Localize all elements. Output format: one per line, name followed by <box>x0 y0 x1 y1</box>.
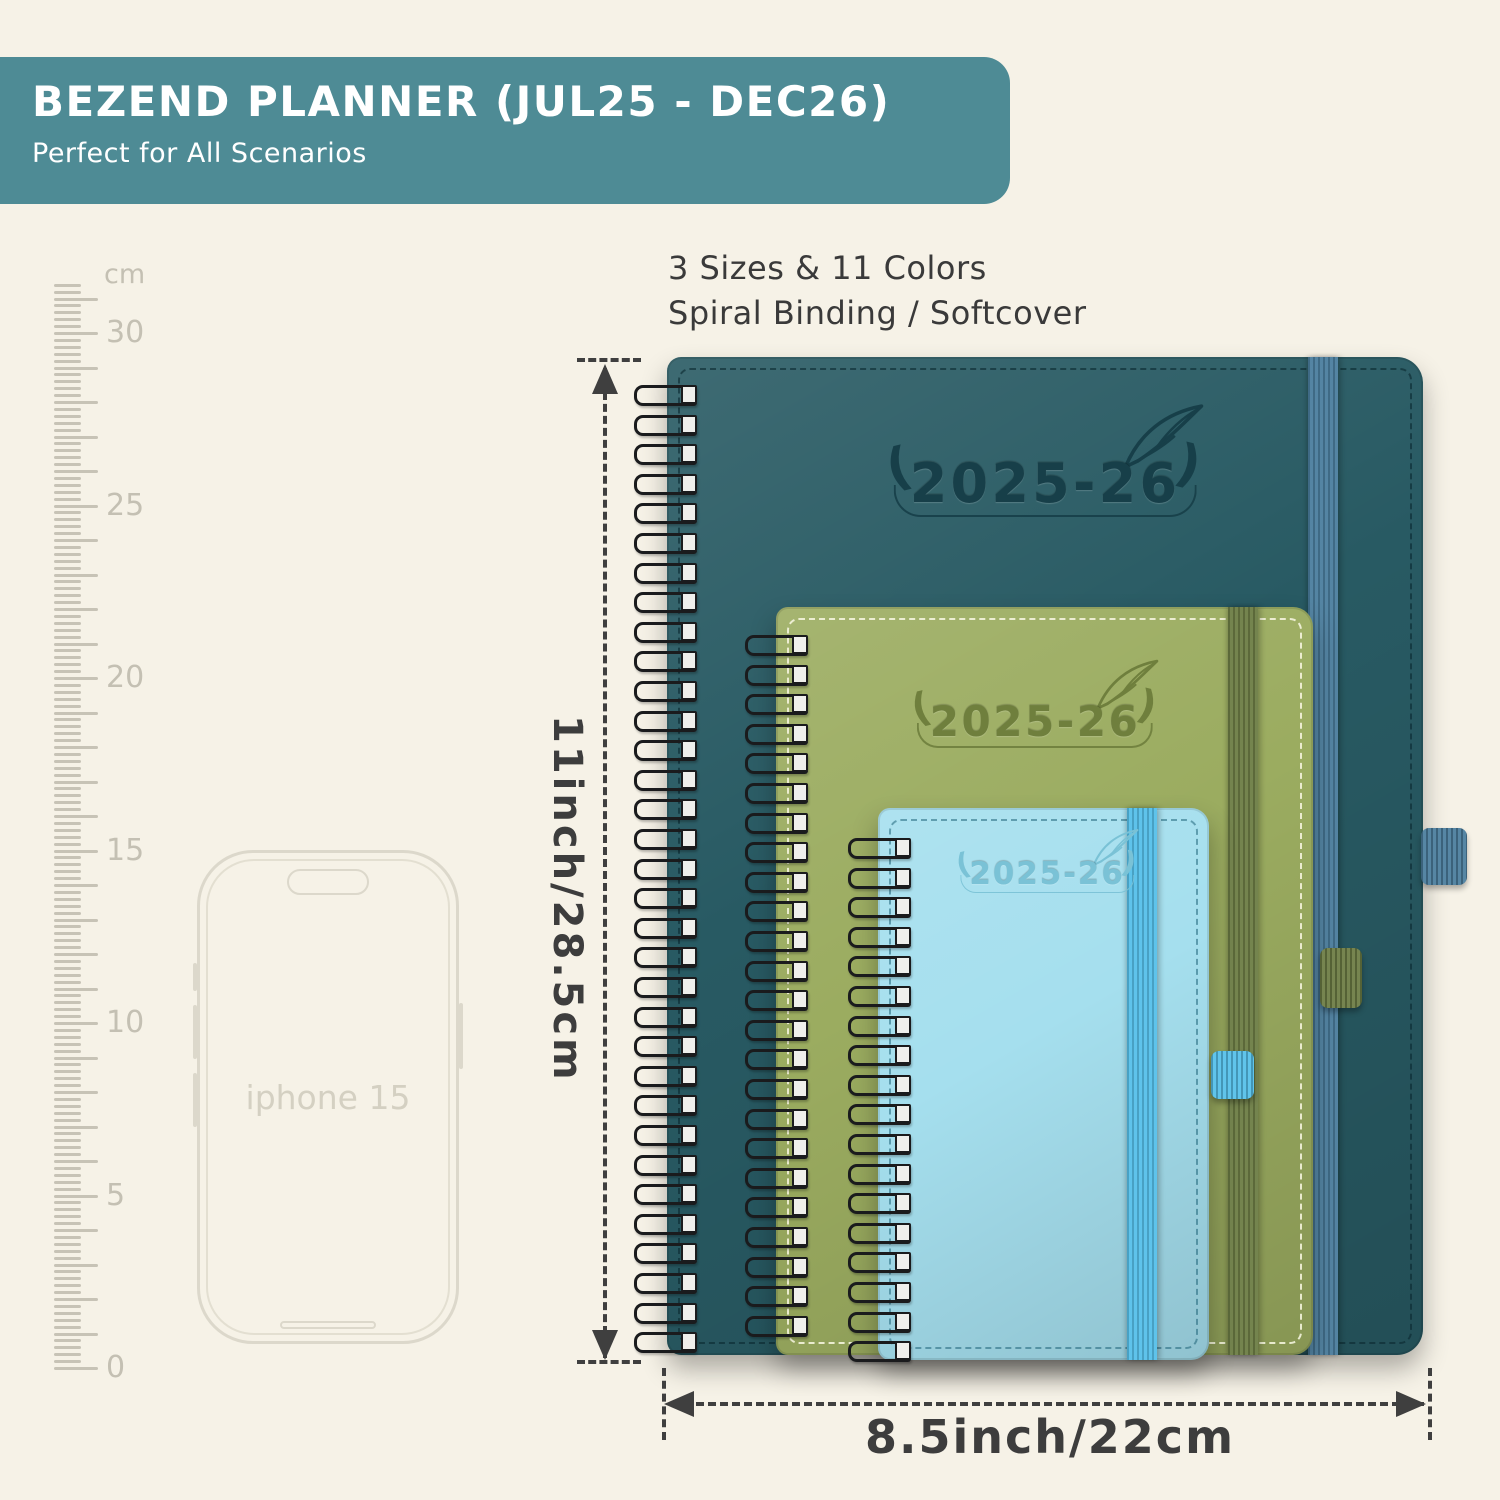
info-line-binding: Spiral Binding / Softcover <box>668 291 1086 336</box>
ruler-tick <box>54 698 81 701</box>
ruler-tick <box>54 801 81 804</box>
spiral-ring <box>848 1341 911 1362</box>
spiral-ring <box>634 533 697 554</box>
ruler-tick <box>54 663 81 666</box>
spiral-ring <box>848 1282 911 1303</box>
ring-glint <box>792 1049 808 1068</box>
cm-ruler: cm 051015202530 <box>40 265 180 1380</box>
ruler-tick <box>54 636 81 639</box>
ruler-tick <box>54 1188 81 1191</box>
ruler-tick <box>54 449 81 452</box>
ring-glint <box>895 1164 911 1183</box>
spiral-ring <box>634 740 697 761</box>
ruler-tick <box>54 1139 81 1142</box>
elastic-band <box>1127 808 1157 1360</box>
ring-glint <box>792 1168 808 1187</box>
height-dimension-cap-bottom <box>577 1360 641 1364</box>
spiral-ring <box>745 635 808 656</box>
ring-glint <box>681 1332 697 1351</box>
ruler-tick <box>54 1098 81 1101</box>
volume-up-button-icon <box>193 1005 197 1059</box>
ruler-tick <box>54 1201 81 1204</box>
banner-subtitle: Perfect for All Scenarios <box>32 138 1010 169</box>
ruler-tick <box>54 298 98 301</box>
ring-glint <box>792 813 808 832</box>
ring-glint <box>681 1243 697 1262</box>
ruler-tick <box>54 898 81 901</box>
embossed-logo: (2025-26) <box>969 856 1124 892</box>
ring-glint <box>792 901 808 920</box>
ruler-tick <box>54 967 81 970</box>
spiral-ring <box>848 868 911 889</box>
ring-glint <box>792 872 808 891</box>
ruler-tick <box>54 491 81 494</box>
ring-glint <box>681 651 697 670</box>
ring-glint <box>681 1184 697 1203</box>
ruler-tick <box>54 1270 81 1273</box>
ruler-tick <box>54 346 81 349</box>
ruler-tick <box>54 753 81 756</box>
ruler-tick <box>54 525 81 528</box>
ruler-label: 15 <box>106 833 144 868</box>
ruler-tick <box>54 1077 81 1080</box>
spiral-ring <box>848 1312 911 1333</box>
ruler-tick <box>54 774 81 777</box>
ring-glint <box>681 533 697 552</box>
ruler-tick <box>54 649 81 652</box>
arrow-right-icon <box>1396 1391 1426 1417</box>
ring-glint <box>681 563 697 582</box>
ruler-tick <box>54 1167 81 1170</box>
spiral-ring <box>634 681 697 702</box>
ruler-label: 10 <box>106 1005 144 1040</box>
spiral-ring <box>745 1020 808 1041</box>
ruler-tick <box>54 705 81 708</box>
ruler-tick <box>54 843 81 846</box>
spiral-ring <box>848 1075 911 1096</box>
ring-glint <box>681 681 697 700</box>
spiral-ring <box>634 1007 697 1028</box>
ruler-tick <box>54 829 81 832</box>
spiral-ring <box>745 813 808 834</box>
ring-glint <box>681 444 697 463</box>
ruler-tick <box>54 1367 98 1370</box>
ruler-tick <box>54 629 81 632</box>
ring-glint <box>895 1016 911 1035</box>
ruler-tick <box>54 367 98 370</box>
arrow-down-icon <box>592 1330 618 1360</box>
ruler-tick <box>54 1298 98 1301</box>
ring-glint <box>681 859 697 878</box>
ruler-tick <box>54 1022 98 1025</box>
ruler-tick <box>54 615 81 618</box>
ruler-tick <box>54 1043 81 1046</box>
ring-glint <box>792 783 808 802</box>
ring-glint <box>681 385 697 404</box>
ruler-tick <box>54 891 81 894</box>
ruler-tick <box>54 332 98 335</box>
ruler-tick <box>54 505 98 508</box>
embossed-logo: (2025-26) <box>930 697 1140 746</box>
spiral-ring <box>745 783 808 804</box>
spiral-ring <box>745 1109 808 1130</box>
ruler-tick <box>54 670 81 673</box>
ring-glint <box>681 947 697 966</box>
ruler-tick <box>54 373 81 376</box>
ruler-tick <box>54 994 81 997</box>
ruler-tick <box>54 580 81 583</box>
ruler-tick <box>54 939 81 942</box>
phone-label: iphone 15 <box>200 1078 456 1117</box>
ruler-tick <box>54 884 98 887</box>
ring-glint <box>792 931 808 950</box>
ruler-tick <box>54 794 81 797</box>
logo-year: 2025-26 <box>910 452 1181 515</box>
ruler-tick <box>54 1305 81 1308</box>
spiral-ring <box>634 415 697 436</box>
spiral-ring <box>634 859 697 880</box>
ruler-tick <box>54 429 81 432</box>
home-indicator-icon <box>280 1321 376 1329</box>
spiral-ring <box>634 1303 697 1324</box>
ring-glint <box>792 665 808 684</box>
ring-glint <box>681 1125 697 1144</box>
ruler-tick <box>54 1132 81 1135</box>
ring-glint <box>895 1223 911 1242</box>
ring-glint <box>681 740 697 759</box>
ruler-tick <box>54 360 81 363</box>
spiral-ring <box>634 1155 697 1176</box>
spiral-ring <box>634 1036 697 1057</box>
ruler-tick <box>54 304 81 307</box>
spiral-ring <box>634 799 697 820</box>
spiral-ring <box>634 977 697 998</box>
ruler-tick <box>54 1153 81 1156</box>
ring-glint <box>792 1227 808 1246</box>
ruler-tick <box>54 394 81 397</box>
ruler-tick <box>54 518 81 521</box>
ruler-label: 25 <box>106 488 144 523</box>
ruler-tick <box>54 732 81 735</box>
ruler-tick <box>54 656 81 659</box>
ring-glint <box>895 1104 911 1123</box>
spiral-ring <box>634 918 697 939</box>
ruler-tick <box>54 1339 81 1342</box>
ruler-tick <box>54 477 81 480</box>
spiral-ring <box>634 888 697 909</box>
ruler-tick <box>54 746 98 749</box>
ruler-tick <box>54 1312 81 1315</box>
ring-glint <box>681 415 697 434</box>
arrow-up-icon <box>592 364 618 394</box>
spiral-ring <box>848 1252 911 1273</box>
spiral-ring <box>745 1168 808 1189</box>
elastic-band <box>1228 607 1258 1355</box>
ruler-tick <box>54 1215 81 1218</box>
spiral-ring <box>634 1125 697 1146</box>
ruler-tick <box>54 1105 81 1108</box>
ruler-tick <box>54 919 98 922</box>
ruler-tick <box>54 1008 81 1011</box>
ruler-tick <box>54 1236 81 1239</box>
spiral-ring <box>634 563 697 584</box>
ruler-tick <box>54 622 81 625</box>
spiral-ring <box>848 1045 911 1066</box>
ruler-tick <box>54 877 81 880</box>
pen-loop <box>1211 1051 1254 1099</box>
ring-glint <box>792 1197 808 1216</box>
spiral-ring <box>848 897 911 918</box>
ruler-tick <box>54 1146 81 1149</box>
spiral-ring <box>745 1286 808 1307</box>
ring-glint <box>895 1312 911 1331</box>
spiral-ring <box>848 1104 911 1125</box>
ring-glint <box>792 724 808 743</box>
ring-glint <box>792 990 808 1009</box>
ruler-tick <box>54 311 81 314</box>
ruler-tick <box>54 712 98 715</box>
ring-glint <box>681 977 697 996</box>
ruler-tick <box>54 946 81 949</box>
spiral-ring <box>634 1066 697 1087</box>
banner: BEZEND PLANNER (JUL25 - DEC26) Perfect f… <box>0 57 1010 204</box>
spiral-ring <box>848 1223 911 1244</box>
ruler-tick <box>54 677 98 680</box>
ruler-tick <box>54 725 81 728</box>
ruler-tick <box>54 339 81 342</box>
spiral-ring <box>634 474 697 495</box>
iphone-15-outline: iphone 15 <box>197 850 459 1344</box>
ring-glint <box>681 1007 697 1026</box>
ring-glint <box>681 474 697 493</box>
arrow-left-icon <box>664 1391 694 1417</box>
spiral-ring <box>634 503 697 524</box>
ruler-label: 20 <box>106 660 144 695</box>
ruler-tick <box>54 318 81 321</box>
spiral-ring <box>745 1316 808 1337</box>
ring-glint <box>681 1036 697 1055</box>
spiral-ring <box>634 651 697 672</box>
spiral-ring <box>745 842 808 863</box>
ruler-tick <box>54 1264 98 1267</box>
spiral-ring <box>634 622 697 643</box>
ring-glint <box>895 897 911 916</box>
ruler-tick <box>54 863 81 866</box>
ruler-tick <box>54 456 81 459</box>
ring-glint <box>681 1273 697 1292</box>
spiral-ring <box>634 1273 697 1294</box>
ruler-tick <box>54 684 81 687</box>
ruler-tick <box>54 1029 81 1032</box>
ring-glint <box>895 1045 911 1064</box>
ruler-tick <box>54 1284 81 1287</box>
ruler-tick <box>54 1119 81 1122</box>
ring-glint <box>681 888 697 907</box>
ruler-tick <box>54 1036 81 1039</box>
ruler-tick <box>54 1353 81 1356</box>
ruler-tick <box>54 905 81 908</box>
ruler-tick <box>54 408 81 411</box>
ruler-tick <box>54 1250 81 1253</box>
ruler-tick <box>54 912 81 915</box>
spiral-ring <box>745 694 808 715</box>
ring-glint <box>792 842 808 861</box>
ring-glint <box>681 799 697 818</box>
ring-glint <box>792 1138 808 1157</box>
ruler-tick <box>54 594 81 597</box>
height-dimension-line <box>603 368 607 1358</box>
ruler-tick <box>54 498 81 501</box>
ruler-tick <box>54 484 81 487</box>
ruler-tick <box>54 1181 81 1184</box>
ring-glint <box>792 1257 808 1276</box>
ruler-tick <box>54 1126 98 1129</box>
ruler-tick <box>54 1001 81 1004</box>
ruler-label: 0 <box>106 1350 125 1385</box>
ruler-tick <box>54 353 81 356</box>
ring-glint <box>792 694 808 713</box>
banner-title: BEZEND PLANNER (JUL25 - DEC26) <box>32 77 1010 126</box>
spiral-ring <box>848 956 911 977</box>
ruler-tick <box>54 291 81 294</box>
ring-glint <box>895 1341 911 1360</box>
ruler-tick <box>54 284 81 287</box>
spiral-ring <box>634 1243 697 1264</box>
ruler-tick <box>54 1277 81 1280</box>
ring-glint <box>895 986 911 1005</box>
spiral-ring <box>848 838 911 859</box>
ruler-tick <box>54 532 81 535</box>
width-dimension-label: 8.5inch/22cm <box>760 1410 1340 1464</box>
ring-glint <box>681 711 697 730</box>
product-size-diagram: BEZEND PLANNER (JUL25 - DEC26) Perfect f… <box>0 0 1500 1500</box>
spiral-ring <box>634 1332 697 1353</box>
ruler-tick <box>54 925 81 928</box>
ruler-tick <box>54 470 98 473</box>
ruler-tick <box>54 739 81 742</box>
planner-small: (2025-26) <box>878 808 1209 1360</box>
ruler-tick <box>54 822 81 825</box>
ruler-tick <box>54 1084 81 1087</box>
product-info: 3 Sizes & 11 Colors Spiral Binding / Sof… <box>668 246 1086 337</box>
height-dimension-cap-top <box>577 358 641 362</box>
spiral-ring <box>848 1164 911 1185</box>
logo-year: 2025-26 <box>969 856 1124 892</box>
ring-glint <box>681 918 697 937</box>
ruler-tick <box>54 870 81 873</box>
spiral-ring <box>745 665 808 686</box>
ruler-tick <box>54 1091 98 1094</box>
ring-glint <box>681 1066 697 1085</box>
ring-glint <box>681 1214 697 1233</box>
ruler-tick <box>54 1174 81 1177</box>
embossed-logo: (2025-26) <box>910 452 1181 515</box>
ruler-tick <box>54 463 81 466</box>
ruler-tick <box>54 511 81 514</box>
spiral-ring <box>745 931 808 952</box>
spiral-ring <box>848 927 911 948</box>
spiral-ring <box>745 1197 808 1218</box>
ruler-tick <box>54 850 98 853</box>
ruler-tick <box>54 401 98 404</box>
spiral-ring <box>745 1079 808 1100</box>
ruler-unit-label: cm <box>104 259 145 290</box>
ruler-tick <box>54 1208 81 1211</box>
ring-glint <box>681 1303 697 1322</box>
ring-glint <box>895 868 911 887</box>
ring-glint <box>792 1109 808 1128</box>
spiral-ring <box>745 724 808 745</box>
spiral-ring <box>848 1193 911 1214</box>
spiral-ring <box>848 986 911 1007</box>
spiral-ring <box>634 770 697 791</box>
ruler-tick <box>54 1257 81 1260</box>
ruler-tick <box>54 1050 81 1053</box>
ruler-tick <box>54 691 81 694</box>
ring-glint <box>792 961 808 980</box>
info-line-sizes-colors: 3 Sizes & 11 Colors <box>668 246 1086 291</box>
ring-glint <box>792 753 808 772</box>
spiral-ring <box>848 1134 911 1155</box>
ruler-tick <box>54 422 81 425</box>
ruler-tick <box>54 1333 98 1336</box>
ring-glint <box>792 1316 808 1335</box>
mute-switch-icon <box>193 963 197 991</box>
ruler-tick <box>54 856 81 859</box>
spiral-ring <box>634 1214 697 1235</box>
spiral-ring <box>745 1049 808 1070</box>
height-dimension-label: 11inch/28.5cm <box>544 715 590 1083</box>
ruler-tick <box>54 781 98 784</box>
ruler-tick <box>54 1229 98 1232</box>
ruler-tick <box>54 387 81 390</box>
ruler-tick <box>54 1063 81 1066</box>
spiral-ring <box>634 444 697 465</box>
ring-glint <box>792 635 808 654</box>
ruler-tick <box>54 601 81 604</box>
ring-glint <box>895 927 911 946</box>
spiral-ring <box>745 872 808 893</box>
ruler-tick <box>54 415 81 418</box>
ruler-tick <box>54 953 98 956</box>
ruler-tick <box>54 546 81 549</box>
ruler-tick <box>54 932 81 935</box>
ruler-tick <box>54 643 98 646</box>
ruler-tick <box>54 960 81 963</box>
ruler-tick <box>54 981 81 984</box>
ruler-tick <box>54 608 98 611</box>
ring-glint <box>895 838 911 857</box>
pen-loop <box>1421 828 1467 885</box>
ruler-tick <box>54 760 81 763</box>
ruler-tick <box>54 1319 81 1322</box>
spiral-ring <box>745 1227 808 1248</box>
ruler-tick <box>54 787 81 790</box>
ruler-tick <box>54 815 98 818</box>
ruler-tick <box>54 808 81 811</box>
ring-glint <box>681 829 697 848</box>
spiral-ring <box>634 1095 697 1116</box>
spiral-ring <box>634 592 697 613</box>
ruler-tick <box>54 567 81 570</box>
ruler-tick <box>54 1015 81 1018</box>
ring-glint <box>895 956 911 975</box>
ring-glint <box>792 1286 808 1305</box>
logo-year: 2025-26 <box>930 697 1140 746</box>
ring-glint <box>895 1134 911 1153</box>
ruler-tick <box>54 1112 81 1115</box>
ruler-tick <box>54 1160 98 1163</box>
